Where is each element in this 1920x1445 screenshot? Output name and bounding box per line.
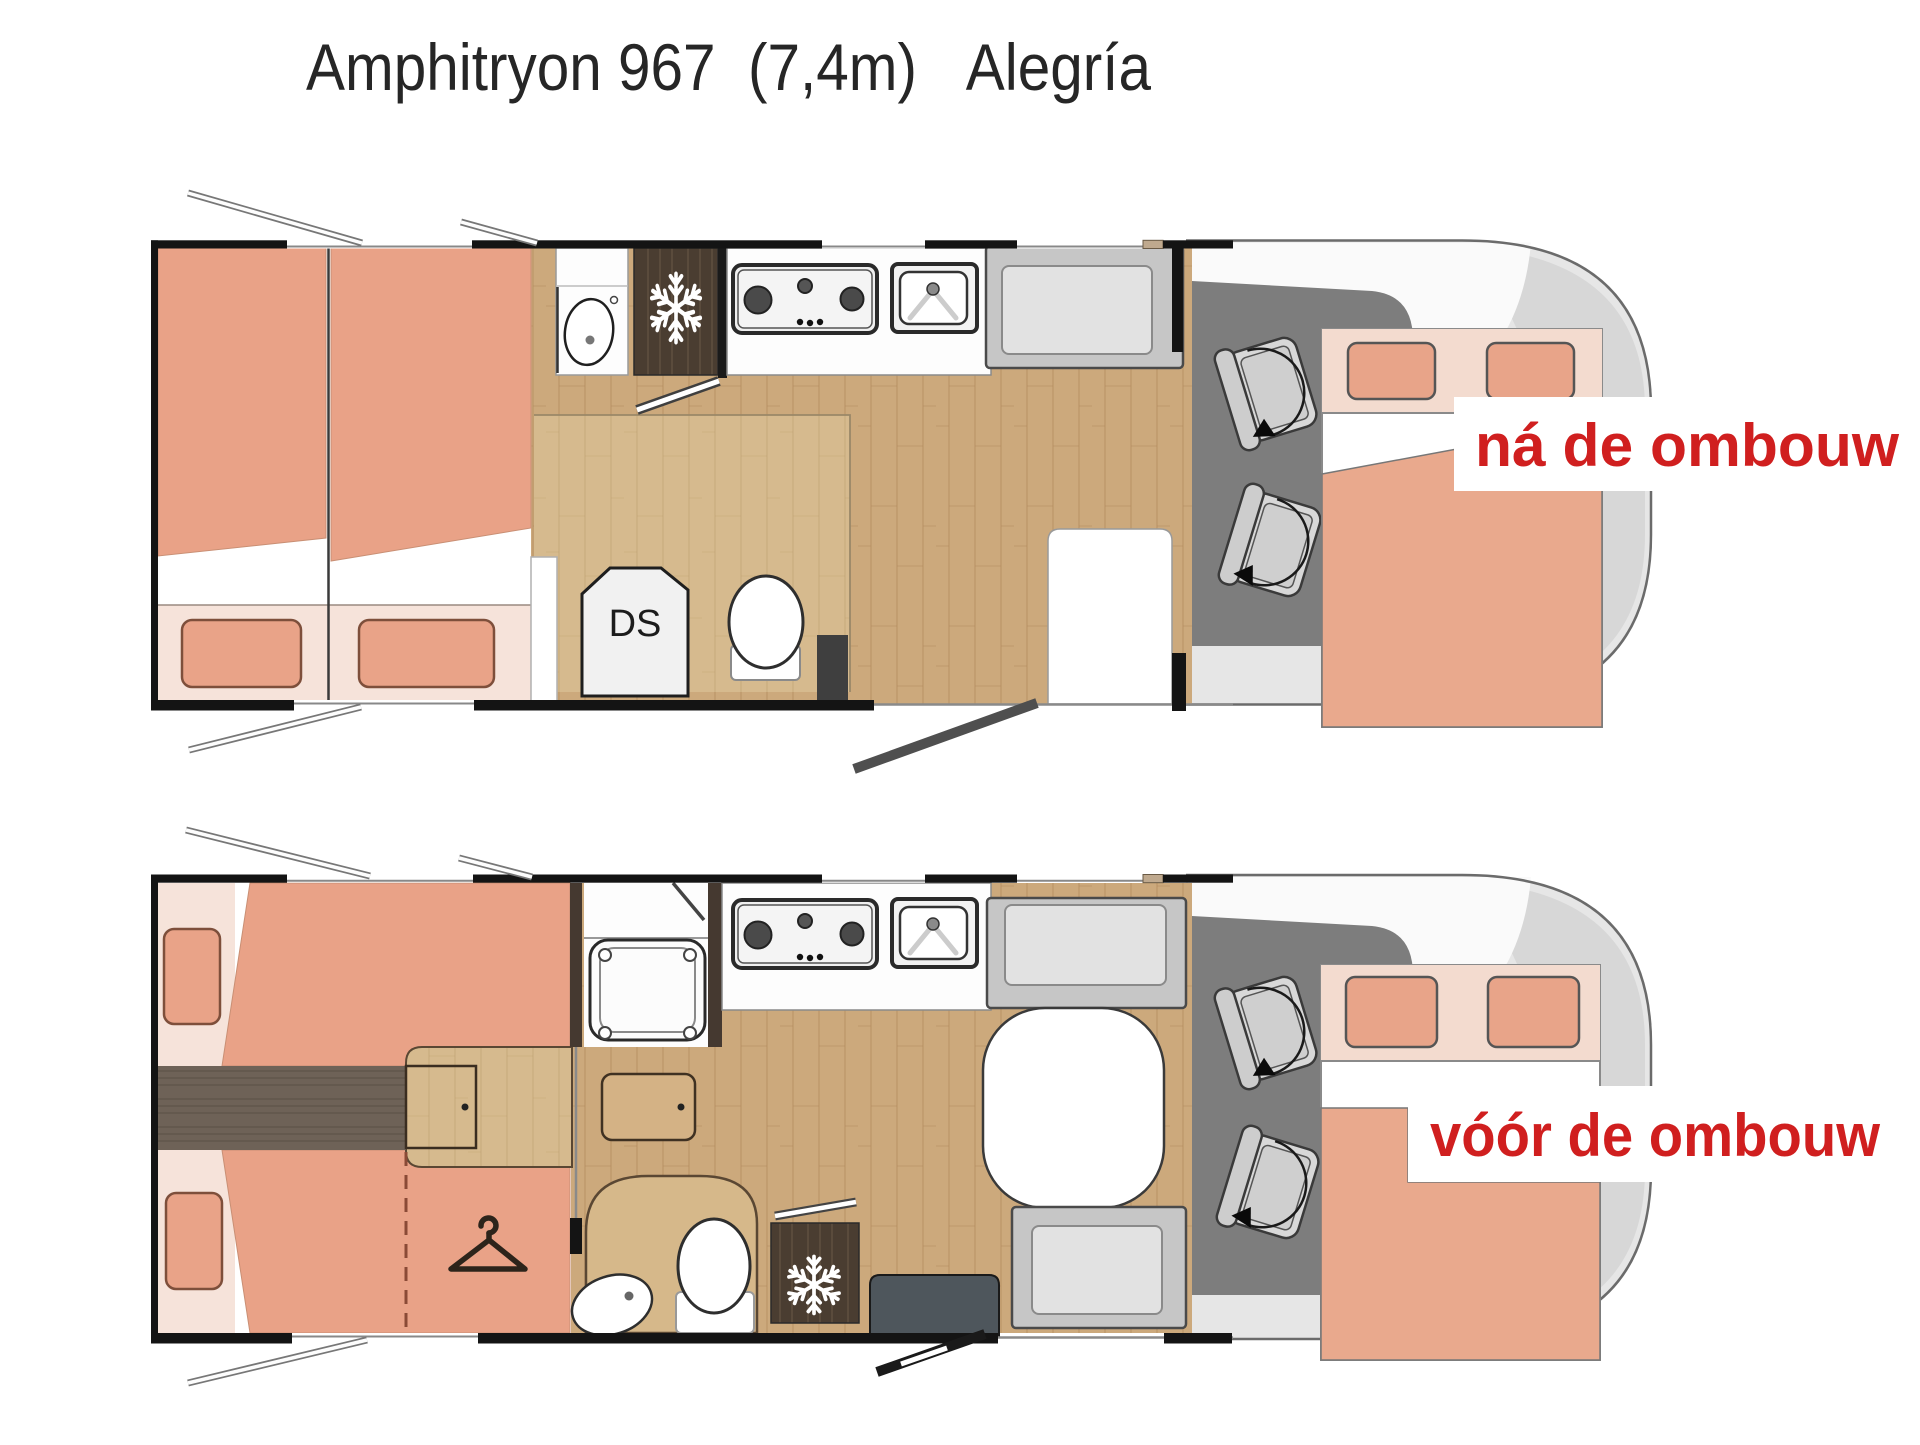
svg-text:DS: DS <box>609 603 662 645</box>
svg-text:Amphitryon 967 (7,4m) Alegr: Amphitryon 967 (7,4m) Alegría <box>306 30 1151 104</box>
svg-text:ná de ombouw: ná de ombouw <box>1475 412 1899 479</box>
svg-text:vóór de ombouw: vóór de ombouw <box>1430 1102 1880 1169</box>
